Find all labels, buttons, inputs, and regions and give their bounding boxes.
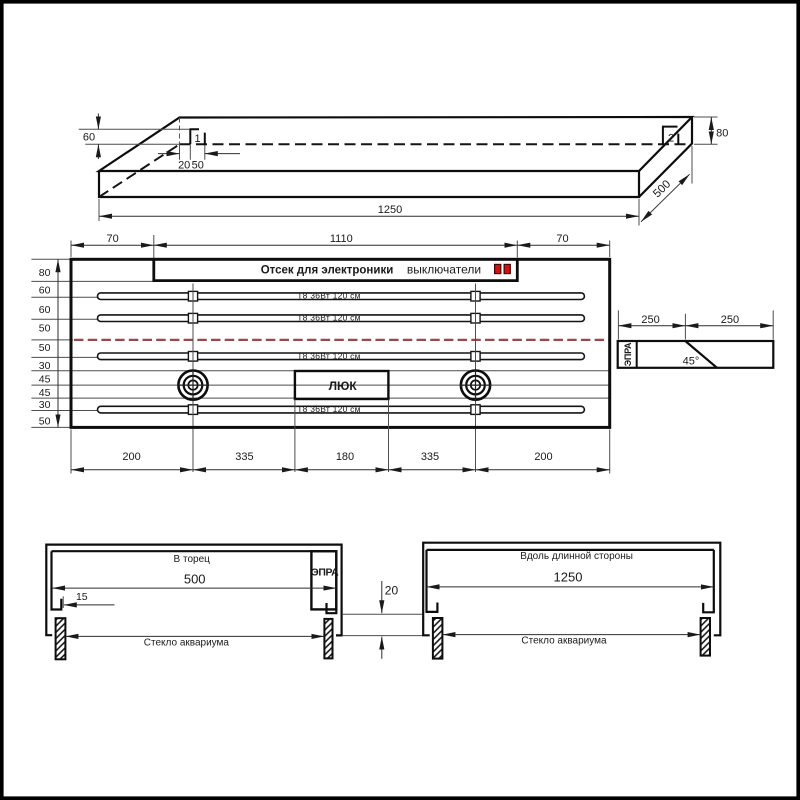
svg-text:250: 250 (721, 314, 739, 326)
svg-text:60: 60 (83, 131, 95, 143)
svg-text:Стекло аквариума: Стекло аквариума (521, 635, 607, 646)
svg-text:50: 50 (39, 342, 51, 354)
svg-text:50: 50 (192, 160, 204, 172)
svg-text:2: 2 (668, 133, 674, 145)
svg-text:1110: 1110 (330, 233, 353, 245)
svg-text:Отсек для электроники: Отсек для электроники (261, 264, 394, 276)
svg-text:180: 180 (336, 451, 354, 463)
svg-text:Стекло аквариума: Стекло аквариума (144, 638, 230, 649)
svg-text:1250: 1250 (554, 570, 583, 585)
svg-text:Т8 36Вт 120 см: Т8 36Вт 120 см (297, 404, 361, 414)
svg-text:335: 335 (421, 451, 439, 463)
svg-text:70: 70 (556, 233, 568, 245)
svg-text:60: 60 (39, 285, 51, 297)
svg-text:ЭПРА: ЭПРА (311, 567, 339, 579)
svg-text:20: 20 (385, 584, 399, 598)
svg-text:45: 45 (39, 373, 51, 385)
svg-text:Т8 36Вт 120 см: Т8 36Вт 120 см (297, 351, 361, 361)
svg-text:30: 30 (39, 399, 51, 411)
svg-text:ЛЮК: ЛЮК (329, 379, 358, 393)
svg-text:70: 70 (106, 233, 118, 245)
svg-text:500: 500 (184, 572, 206, 587)
svg-text:45: 45 (39, 387, 51, 399)
svg-text:45°: 45° (683, 356, 700, 368)
svg-text:50: 50 (39, 322, 51, 334)
svg-text:ЭПРА: ЭПРА (623, 342, 633, 366)
svg-text:80: 80 (39, 267, 51, 279)
svg-text:15: 15 (76, 591, 88, 603)
svg-text:200: 200 (122, 451, 140, 463)
svg-text:200: 200 (534, 451, 552, 463)
svg-text:Т8 36Вт 120 см: Т8 36Вт 120 см (297, 291, 361, 301)
svg-text:1250: 1250 (378, 204, 402, 216)
svg-text:выключатели: выключатели (407, 262, 481, 276)
svg-text:В торец: В торец (174, 554, 211, 565)
svg-text:250: 250 (641, 314, 659, 326)
svg-text:60: 60 (39, 304, 51, 316)
svg-text:50: 50 (39, 415, 51, 427)
svg-text:30: 30 (39, 360, 51, 372)
svg-text:Т8 36Вт 120 см: Т8 36Вт 120 см (297, 313, 361, 323)
svg-text:1: 1 (194, 133, 200, 145)
svg-text:335: 335 (235, 451, 253, 463)
svg-text:20: 20 (178, 160, 190, 172)
svg-text:80: 80 (716, 128, 728, 140)
svg-text:Вдоль длинной стороны: Вдоль длинной стороны (520, 551, 633, 562)
